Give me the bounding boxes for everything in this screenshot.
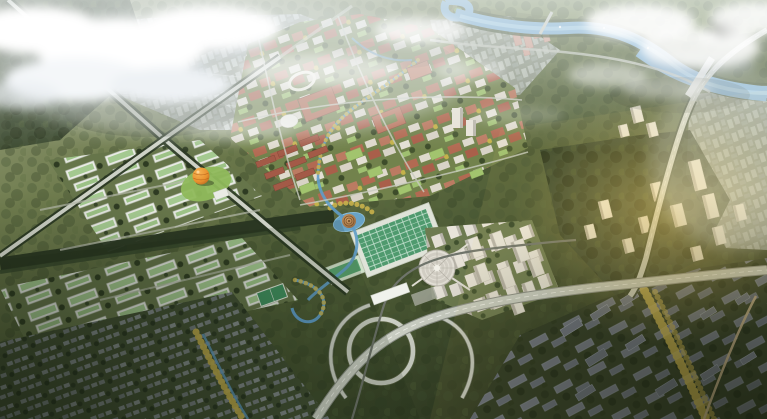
screenshot-root <box>0 0 767 419</box>
vignette-bottom-right <box>0 0 767 419</box>
aerial-city-render <box>0 0 767 419</box>
